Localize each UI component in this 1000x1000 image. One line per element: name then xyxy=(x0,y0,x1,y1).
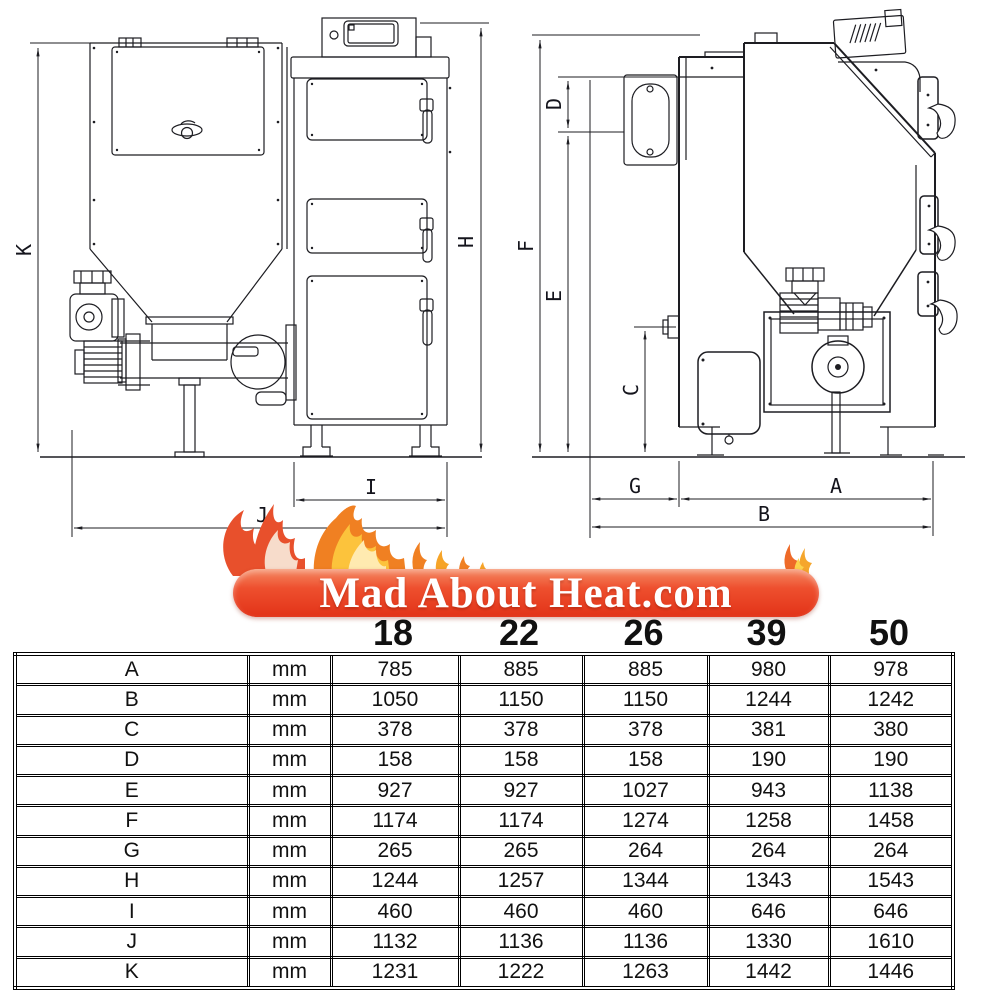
value-cell: 190 xyxy=(708,745,829,775)
value-cell: 1231 xyxy=(331,957,459,988)
table-row-I: Imm460460460646646 xyxy=(15,897,953,927)
auger-feeder xyxy=(70,271,296,457)
value-cell: 381 xyxy=(708,715,829,745)
dim-letter: B xyxy=(15,685,248,715)
value-cell: 1242 xyxy=(829,685,953,715)
chute-flange xyxy=(146,317,233,324)
unit-cell: mm xyxy=(248,927,331,957)
dim-label-K: K xyxy=(12,244,36,256)
unit-cell: mm xyxy=(248,806,331,836)
model-39: 39 xyxy=(706,615,827,651)
value-cell: 980 xyxy=(708,654,829,685)
value-cell: 460 xyxy=(459,897,583,927)
value-cell: 885 xyxy=(459,654,583,685)
controller-unit xyxy=(833,9,906,58)
dim-letter: K xyxy=(15,957,248,988)
rivet-dots xyxy=(93,47,280,246)
table-row-F: Fmm11741174127412581458 xyxy=(15,806,953,836)
dim-label-H: H xyxy=(454,236,478,248)
value-cell: 158 xyxy=(459,745,583,775)
value-cell: 785 xyxy=(331,654,459,685)
value-cell: 1343 xyxy=(708,866,829,896)
burner-assembly-side xyxy=(663,268,890,453)
value-cell: 927 xyxy=(459,776,583,806)
value-cell: 1244 xyxy=(331,866,459,896)
value-cell: 378 xyxy=(459,715,583,745)
dim-C: C xyxy=(619,327,676,452)
unit-cell: mm xyxy=(248,957,331,988)
model-22: 22 xyxy=(457,615,581,651)
value-cell: 1344 xyxy=(583,866,708,896)
value-cell: 978 xyxy=(829,654,953,685)
value-cell: 264 xyxy=(583,836,708,866)
value-cell: 460 xyxy=(331,897,459,927)
unit-cell: mm xyxy=(248,715,331,745)
value-cell: 378 xyxy=(331,715,459,745)
boiler-side-body xyxy=(679,43,935,427)
value-cell: 1446 xyxy=(829,957,953,988)
lid-handle xyxy=(172,121,202,139)
value-cell: 646 xyxy=(708,897,829,927)
unit-cell: mm xyxy=(248,866,331,896)
logo-text: Mad About Heat.com xyxy=(319,572,732,615)
table-row-H: Hmm12441257134413431543 xyxy=(15,866,953,896)
fan-housing xyxy=(231,335,286,405)
value-cell: 1138 xyxy=(829,776,953,806)
value-cell: 460 xyxy=(583,897,708,927)
dim-label-E: E xyxy=(542,290,566,302)
unit-cell: mm xyxy=(248,776,331,806)
unit-cell: mm xyxy=(248,745,331,775)
value-cell: 1610 xyxy=(829,927,953,957)
boiler-spec-sheet: K H I J xyxy=(0,0,1000,1000)
front-view-drawing: K H I J xyxy=(12,18,489,537)
vent-grille xyxy=(849,23,882,43)
value-cell: 1050 xyxy=(331,685,459,715)
value-cell: 264 xyxy=(708,836,829,866)
dim-F: F xyxy=(514,35,700,452)
dim-label-F: F xyxy=(514,240,538,252)
value-cell: 265 xyxy=(331,836,459,866)
boiler-body-front xyxy=(291,18,451,456)
value-cell: 1027 xyxy=(583,776,708,806)
upper-door xyxy=(307,79,427,140)
boiler-feet xyxy=(300,425,442,456)
value-cell: 1244 xyxy=(708,685,829,715)
model-50: 50 xyxy=(827,615,951,651)
dim-letter: I xyxy=(15,897,248,927)
model-26: 26 xyxy=(581,615,706,651)
value-cell: 885 xyxy=(583,654,708,685)
value-cell: 158 xyxy=(583,745,708,775)
dim-letter: C xyxy=(15,715,248,745)
value-cell: 158 xyxy=(331,745,459,775)
dim-letter: J xyxy=(15,927,248,957)
door-dots xyxy=(311,83,452,415)
value-cell: 1330 xyxy=(708,927,829,957)
value-cell: 1136 xyxy=(459,927,583,957)
value-cell: 1258 xyxy=(708,806,829,836)
model-18: 18 xyxy=(329,615,457,651)
table-row-G: Gmm265265264264264 xyxy=(15,836,953,866)
value-cell: 1132 xyxy=(331,927,459,957)
value-cell: 265 xyxy=(459,836,583,866)
dim-H: H xyxy=(420,23,489,452)
front-view-dimensions: K H I J xyxy=(12,23,489,537)
support-leg xyxy=(175,378,204,457)
value-cell: 1263 xyxy=(583,957,708,988)
table-row-E: Emm92792710279431138 xyxy=(15,776,953,806)
value-cell: 380 xyxy=(829,715,953,745)
value-cell: 927 xyxy=(331,776,459,806)
table-row-K: Kmm12311222126314421446 xyxy=(15,957,953,988)
model-header-row: 18 22 26 39 50 xyxy=(329,615,951,651)
unit-cell: mm xyxy=(248,836,331,866)
middle-door xyxy=(307,199,427,253)
side-view-drawing: F D E C G xyxy=(514,9,965,538)
side-view-dimensions: F D E C G xyxy=(514,35,933,538)
value-cell: 378 xyxy=(583,715,708,745)
side-doors xyxy=(918,77,957,334)
feeder-motor xyxy=(70,271,124,383)
value-cell: 264 xyxy=(829,836,953,866)
dim-label-A: A xyxy=(830,474,842,498)
dim-letter: E xyxy=(15,776,248,806)
value-cell: 1274 xyxy=(583,806,708,836)
value-cell: 1150 xyxy=(459,685,583,715)
controller-mount-panel xyxy=(838,62,920,92)
lower-door xyxy=(307,276,427,419)
value-cell: 646 xyxy=(829,897,953,927)
table-row-D: Dmm158158158190190 xyxy=(15,745,953,775)
dim-label-D: D xyxy=(542,98,566,110)
value-cell: 1222 xyxy=(459,957,583,988)
table-row-C: Cmm378378378381380 xyxy=(15,715,953,745)
flame-graphic xyxy=(210,468,830,580)
flue-outlet xyxy=(624,75,677,165)
value-cell: 1174 xyxy=(331,806,459,836)
value-cell: 1257 xyxy=(459,866,583,896)
chimney-stub xyxy=(755,33,777,43)
dimensions-table-wrap: Amm785885885980978 Bmm105011501150124412… xyxy=(13,652,955,990)
value-cell: 190 xyxy=(829,745,953,775)
side-base-feet xyxy=(679,427,944,455)
value-cell: 1136 xyxy=(583,927,708,957)
dim-label-C: C xyxy=(619,384,643,396)
logo-banner: Mad About Heat.com xyxy=(233,569,819,617)
dimensions-table: Amm785885885980978 Bmm105011501150124412… xyxy=(13,652,955,990)
dim-E: E xyxy=(542,136,568,452)
side-details xyxy=(679,33,935,250)
unit-cell: mm xyxy=(248,685,331,715)
expansion-box xyxy=(698,352,760,434)
value-cell: 1174 xyxy=(459,806,583,836)
value-cell: 943 xyxy=(708,776,829,806)
dim-letter: A xyxy=(15,654,248,685)
control-panel xyxy=(322,18,431,57)
table-row-J: Jmm11321136113613301610 xyxy=(15,927,953,957)
dim-letter: H xyxy=(15,866,248,896)
dim-letter: F xyxy=(15,806,248,836)
unit-cell: mm xyxy=(248,654,331,685)
table-row-B: Bmm10501150115012441242 xyxy=(15,685,953,715)
table-row-A: Amm785885885980978 xyxy=(15,654,953,685)
dim-letter: G xyxy=(15,836,248,866)
pellet-hopper xyxy=(90,38,287,322)
value-cell: 1442 xyxy=(708,957,829,988)
top-plate xyxy=(291,57,449,78)
value-cell: 1150 xyxy=(583,685,708,715)
assembly-leg xyxy=(832,392,840,453)
value-cell: 1458 xyxy=(829,806,953,836)
dim-letter: D xyxy=(15,745,248,775)
unit-cell: mm xyxy=(248,897,331,927)
value-cell: 1543 xyxy=(829,866,953,896)
